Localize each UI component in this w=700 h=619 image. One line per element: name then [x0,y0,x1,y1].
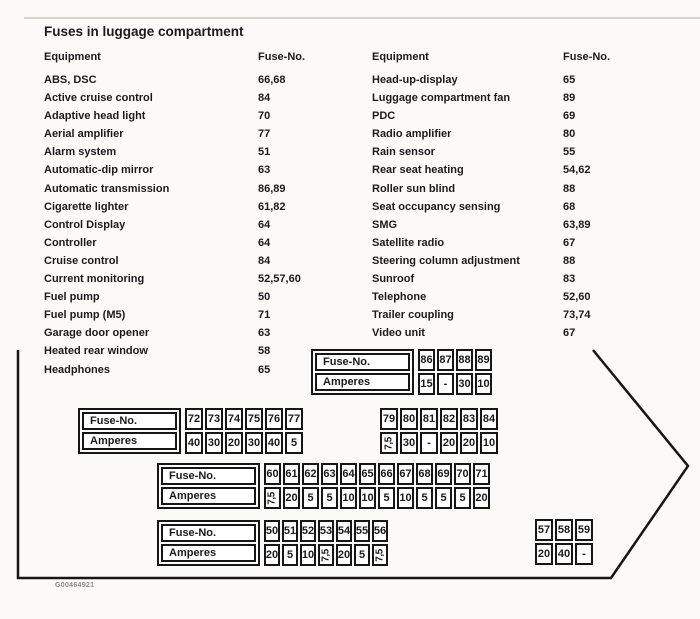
fuse-amp-table-79-84: 797,5803081-822083208410 [380,408,498,454]
fuse-no-cell: 82 [440,408,458,430]
fuse-number: 50 [258,291,270,303]
equipment-label: Fuel pump [44,291,100,303]
equipment-label: Garage door opener [44,327,149,339]
amperes-cell: 5 [282,544,298,566]
amperes-cell: 30 [205,432,223,454]
fuse-amp-label-box: Fuse-No.Amperes [157,463,260,509]
fuse-no-cell: 75 [245,408,263,430]
fuse-no-cell: 57 [535,519,553,541]
equipment-row: Adaptive head light70 [44,110,364,128]
fuse-column: 59- [575,519,593,565]
amperes-cell: - [437,373,454,395]
fuse-column: 8830 [456,349,473,395]
equipment-label: ABS, DSC [44,74,97,86]
fuse-amp-table-57-59: 5720584059- [535,519,593,565]
fuse-column: 635 [321,463,338,509]
fuse-column: 8320 [460,408,478,454]
fuse-column: 567,5 [372,520,388,566]
equipment-label: Luggage compartment fan [372,92,510,104]
fuse-number: 52,57,60 [258,273,301,285]
fuse-number: 51 [258,146,270,158]
fuse-column: 625 [302,463,319,509]
fuse-column: 685 [416,463,433,509]
fuse-no-cell: 61 [283,463,300,485]
fuse-amp-label-box: Fuse-No.Amperes [311,349,414,395]
equipment-row: Controller64 [44,237,364,255]
equipment-label: Active cruise control [44,92,153,104]
fuse-no-cell: 79 [380,408,398,430]
equipment-row: Rain sensor55 [372,146,692,164]
fuse-column: 6710 [397,463,414,509]
amperes-cell: 20 [264,544,280,566]
equipment-row: Garage door opener63 [44,327,364,345]
equipment-label: Cigarette lighter [44,201,128,213]
fuse-no-cell: 60 [264,463,281,485]
equipment-label: Rear seat heating [372,164,464,176]
fuse-column: 515 [282,520,298,566]
fuse-no-cell: 62 [302,463,319,485]
fuse-no-cell: 51 [282,520,298,542]
equipment-label: Head-up-display [372,74,458,86]
fuse-number: 65 [258,364,270,376]
amperes-cell: 5 [378,487,395,509]
equipment-label: Control Display [44,219,125,231]
fuse-no-row-label: Fuse-No. [315,353,410,371]
equipment-row: Active cruise control84 [44,92,364,110]
fuse-number: 63 [258,327,270,339]
fuse-number: 64 [258,219,270,231]
fuse-column: 7240 [185,408,203,454]
amperes-cell: 7,5 [380,432,398,454]
amperes-row-label: Amperes [161,487,256,505]
equipment-row: Automatic transmission86,89 [44,183,364,201]
equipment-label: Alarm system [44,146,116,158]
amperes-cell: 10 [300,544,316,566]
amperes-cell: 10 [480,432,498,454]
fuse-number: 70 [258,110,270,122]
fuse-column: 6510 [359,463,376,509]
equipment-row: Telephone52,60 [372,291,692,309]
fuse-number: 65 [563,74,575,86]
amperes-cell: 40 [265,432,283,454]
fuse-no-cell: 56 [372,520,388,542]
equipment-label: Trailer coupling [372,309,454,321]
fuse-no-cell: 69 [435,463,452,485]
fuse-no-row-label: Fuse-No. [161,524,256,542]
fuse-amp-grid: 607,561206256356410651066567106856957057… [264,463,490,509]
fuse-column: 705 [454,463,471,509]
equipment-label: Satellite radio [372,237,444,249]
fuse-no-cell: 84 [480,408,498,430]
fuse-column: 81- [420,408,438,454]
fuse-column: 7530 [245,408,263,454]
fuse-no-row-label: Fuse-No. [82,412,177,430]
equipment-label: Current monitoring [44,273,144,285]
fuse-column: 7330 [205,408,223,454]
page-title: Fuses in luggage compartment [44,24,244,39]
fuse-number: 66,68 [258,74,286,86]
amperes-cell: 15 [418,373,435,395]
fuse-number: 84 [258,92,270,104]
fuse-column: 5720 [535,519,553,565]
figure-code: G00464921 [55,582,94,589]
amperes-value-rotated: 7,5 [384,437,395,449]
equipment-label: Headphones [44,364,110,376]
equipment-label: SMG [372,219,397,231]
equipment-row: Video unit67 [372,327,692,345]
amperes-cell: 20 [535,543,553,565]
equipment-list-left: ABS, DSC66,68Active cruise control84Adap… [44,74,364,382]
equipment-row: PDC69 [372,110,692,128]
equipment-row: Trailer coupling73,74 [372,309,692,327]
equipment-label: Rain sensor [372,146,435,158]
fuse-no-cell: 87 [437,349,454,371]
amperes-cell: 7,5 [372,544,388,566]
fuse-no-cell: 64 [340,463,357,485]
amperes-cell: 20 [283,487,300,509]
fuse-no-cell: 70 [454,463,471,485]
fuse-no-cell: 59 [575,519,593,541]
equipment-label: Automatic-dip mirror [44,164,153,176]
equipment-row: Luggage compartment fan89 [372,92,692,110]
amperes-cell: 7,5 [264,487,281,509]
fuse-no-row-label: Fuse-No. [161,467,256,485]
equipment-label: Aerial amplifier [44,128,123,140]
fuse-number: 67 [563,237,575,249]
fuse-no-cell: 77 [285,408,303,430]
amperes-cell: 20 [336,544,352,566]
fuse-no-cell: 65 [359,463,376,485]
equipment-row: Radio amplifier80 [372,128,692,146]
equipment-row: SMG63,89 [372,219,692,237]
equipment-row: Rear seat heating54,62 [372,164,692,182]
equipment-label: Video unit [372,327,425,339]
amperes-value-rotated: 7,5 [267,492,278,504]
amperes-cell: 30 [456,373,473,395]
equipment-label: Cruise control [44,255,119,267]
equipment-row: Automatic-dip mirror63 [44,164,364,182]
fuse-amp-table-60-71: Fuse-No.Amperes607,561206256356410651066… [157,463,490,509]
amperes-cell: 5 [321,487,338,509]
fuse-number: 58 [258,345,270,357]
fuse-no-cell: 55 [354,520,370,542]
equipment-list-right: Head-up-display65Luggage compartment fan… [372,74,692,345]
equipment-row: Control Display64 [44,219,364,237]
fuse-column: 607,5 [264,463,281,509]
fuse-number: 67 [563,327,575,339]
fuse-no-cell: 68 [416,463,433,485]
fuse-number: 73,74 [563,309,591,321]
fuse-column: 8030 [400,408,418,454]
fuse-column: 8910 [475,349,492,395]
fuse-column: 87- [437,349,454,395]
fuse-column: 5020 [264,520,280,566]
column-header-equipment-left: Equipment [44,51,101,63]
column-header-fuse-no-left: Fuse-No. [258,51,305,63]
fuse-no-cell: 71 [473,463,490,485]
fuse-column: 5420 [336,520,352,566]
fuse-amp-label-box: Fuse-No.Amperes [157,520,260,566]
equipment-label: Seat occupancy sensing [372,201,500,213]
fuse-no-cell: 58 [555,519,573,541]
equipment-label: Roller sun blind [372,183,455,195]
fuse-number: 83 [563,273,575,285]
fuse-number: 80 [563,128,575,140]
fuse-number: 68 [563,201,575,213]
fuse-amp-grid: 797,5803081-822083208410 [380,408,498,454]
amperes-cell: 20 [225,432,243,454]
amperes-cell: - [575,543,593,565]
fuse-column: 6120 [283,463,300,509]
amperes-cell: - [420,432,438,454]
fuse-number: 61,82 [258,201,286,213]
equipment-label: Automatic transmission [44,183,169,195]
equipment-row: Sunroof83 [372,273,692,291]
fuse-no-cell: 53 [318,520,334,542]
equipment-label: Heated rear window [44,345,148,357]
fuse-amp-table-50-56: Fuse-No.Amperes50205155210537,5542055556… [157,520,388,566]
fuse-number: 64 [258,237,270,249]
fuse-amp-table-72-77: Fuse-No.Amperes72407330742075307640775 [78,408,303,454]
column-header-fuse-no-right: Fuse-No. [563,51,610,63]
amperes-cell: 5 [285,432,303,454]
fuse-number: 55 [563,146,575,158]
fuse-no-cell: 80 [400,408,418,430]
fuse-column: 5210 [300,520,316,566]
equipment-row: Current monitoring52,57,60 [44,273,364,291]
equipment-row: Roller sun blind88 [372,183,692,201]
equipment-row: Cigarette lighter61,82 [44,201,364,219]
fuse-number: 69 [563,110,575,122]
fuse-column: 6410 [340,463,357,509]
fuse-no-cell: 73 [205,408,223,430]
equipment-row: Aerial amplifier77 [44,128,364,146]
fuse-number: 88 [563,183,575,195]
fuse-column: 8410 [480,408,498,454]
amperes-cell: 5 [454,487,471,509]
fuse-no-cell: 74 [225,408,243,430]
fuse-no-cell: 83 [460,408,478,430]
equipment-row: Head-up-display65 [372,74,692,92]
fuse-no-cell: 88 [456,349,473,371]
fuse-number: 89 [563,92,575,104]
fuse-no-cell: 72 [185,408,203,430]
amperes-row-label: Amperes [315,373,410,391]
amperes-cell: 40 [185,432,203,454]
fuse-column: 695 [435,463,452,509]
fuse-number: 54,62 [563,164,591,176]
fuse-amp-grid: 72407330742075307640775 [185,408,303,454]
fuse-amp-grid: 861587-88308910 [418,349,492,395]
equipment-label: Controller [44,237,97,249]
amperes-cell: 5 [354,544,370,566]
amperes-cell: 20 [473,487,490,509]
amperes-cell: 30 [400,432,418,454]
fuse-no-cell: 66 [378,463,395,485]
equipment-row: ABS, DSC66,68 [44,74,364,92]
fuse-column: 537,5 [318,520,334,566]
equipment-label: Adaptive head light [44,110,145,122]
fuse-column: 8615 [418,349,435,395]
amperes-row-label: Amperes [82,432,177,450]
amperes-cell: 10 [359,487,376,509]
equipment-row: Alarm system51 [44,146,364,164]
fuse-column: 5840 [555,519,573,565]
fuse-number: 63,89 [563,219,591,231]
equipment-row: Seat occupancy sensing68 [372,201,692,219]
amperes-cell: 7,5 [318,544,334,566]
column-header-equipment-right: Equipment [372,51,429,63]
fuse-column: 8220 [440,408,458,454]
amperes-cell: 10 [340,487,357,509]
fuse-amp-table-86-89: Fuse-No.Amperes861587-88308910 [311,349,492,395]
fuse-number: 86,89 [258,183,286,195]
amperes-value-rotated: 7,5 [321,549,332,561]
fuse-column: 7120 [473,463,490,509]
fuse-column: 665 [378,463,395,509]
amperes-cell: 5 [416,487,433,509]
fuse-no-cell: 63 [321,463,338,485]
fuse-column: 7640 [265,408,283,454]
fuse-column: 775 [285,408,303,454]
equipment-row: Fuel pump (M5)71 [44,309,364,327]
fuse-column: 797,5 [380,408,398,454]
fuse-no-cell: 86 [418,349,435,371]
fuse-no-cell: 89 [475,349,492,371]
equipment-row: Steering column adjustment88 [372,255,692,273]
fuse-no-cell: 81 [420,408,438,430]
fuse-no-cell: 67 [397,463,414,485]
fuse-no-cell: 76 [265,408,283,430]
amperes-cell: 10 [475,373,492,395]
equipment-label: PDC [372,110,395,122]
fuse-no-cell: 52 [300,520,316,542]
amperes-cell: 20 [440,432,458,454]
amperes-cell: 40 [555,543,573,565]
fuse-column: 555 [354,520,370,566]
fuse-no-cell: 54 [336,520,352,542]
equipment-row: Fuel pump50 [44,291,364,309]
amperes-cell: 5 [302,487,319,509]
amperes-cell: 30 [245,432,263,454]
equipment-label: Fuel pump (M5) [44,309,125,321]
fuse-number: 84 [258,255,270,267]
amperes-row-label: Amperes [161,544,256,562]
fuse-amp-grid: 50205155210537,55420555567,5 [264,520,388,566]
fuse-number: 77 [258,128,270,140]
equipment-label: Sunroof [372,273,414,285]
page-top-rule [24,17,700,19]
fuse-number: 52,60 [563,291,591,303]
fuse-number: 71 [258,309,270,321]
fuse-amp-label-box: Fuse-No.Amperes [78,408,181,454]
fuse-number: 63 [258,164,270,176]
equipment-label: Telephone [372,291,426,303]
equipment-row: Cruise control84 [44,255,364,273]
fuse-column: 7420 [225,408,243,454]
fuse-number: 88 [563,255,575,267]
equipment-row: Satellite radio67 [372,237,692,255]
equipment-label: Radio amplifier [372,128,451,140]
fuse-no-cell: 50 [264,520,280,542]
amperes-cell: 20 [460,432,478,454]
fuse-amp-grid: 5720584059- [535,519,593,565]
amperes-cell: 10 [397,487,414,509]
amperes-value-rotated: 7,5 [375,549,386,561]
equipment-label: Steering column adjustment [372,255,520,267]
amperes-cell: 5 [435,487,452,509]
